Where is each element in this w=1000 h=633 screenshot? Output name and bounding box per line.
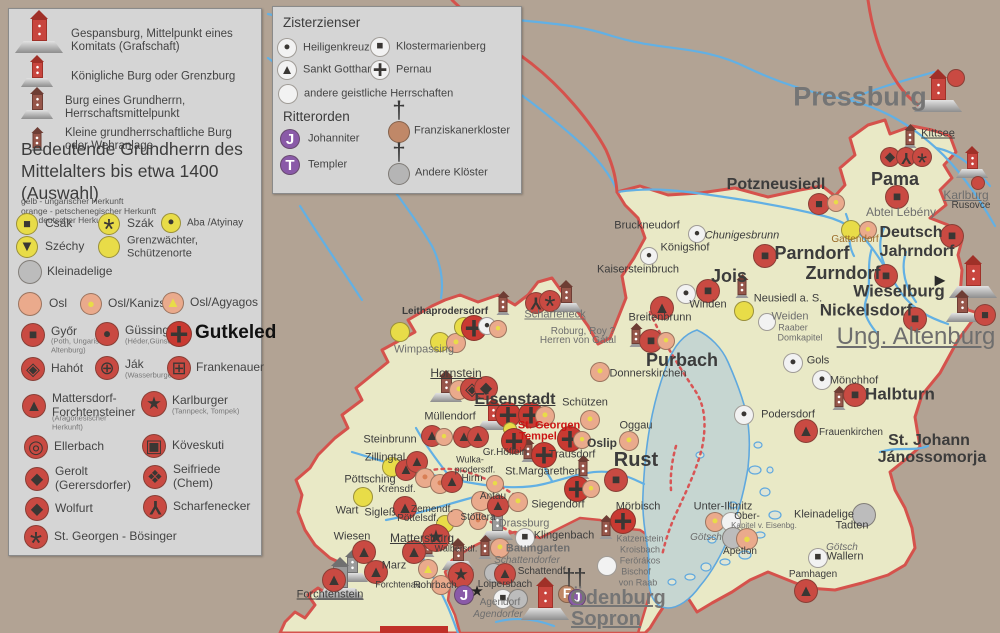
gray-marker xyxy=(18,260,42,284)
red-sqo-marker: ▣ xyxy=(142,434,166,458)
yellow-square-marker: ■ xyxy=(16,213,38,235)
purple-J-marker: J xyxy=(280,129,300,149)
yellow-marker xyxy=(98,236,120,258)
red-diamond-marker: ◆ xyxy=(25,497,49,521)
legend-kirche-heiligenkreuz: Heiligenkreuz xyxy=(303,42,370,55)
red-diamond4-marker: ◈ xyxy=(21,357,45,381)
red-dot-marker: ● xyxy=(95,322,119,346)
legend-kirche-pernau: Pernau xyxy=(396,64,431,77)
legend-family-osl-agyagos: Osl/Agyagos xyxy=(190,296,258,310)
legend-family-cs-k: Csák xyxy=(45,217,72,231)
legend-text-tannpeck-tompek: (Tannpeck, Tompek) xyxy=(172,408,239,417)
legend-family-st-georgen-bösinger: St. Georgen - Bösinger xyxy=(54,530,177,544)
cross-icon: † xyxy=(392,141,405,165)
legend-family-sz-chy: Széchy xyxy=(45,240,84,254)
yellow-dot-marker: ● xyxy=(161,213,181,233)
salmon-ydot-marker: ● xyxy=(80,293,102,315)
legend-label-königliche-burg-oder-grenzburg: Königliche Burg oder Grenzburg xyxy=(71,70,235,83)
white-cross-marker: + xyxy=(370,60,390,80)
red-square-marker: ■ xyxy=(21,323,45,347)
legend-family-osl: Osl xyxy=(49,297,67,311)
red-asterisk-marker: * xyxy=(24,525,48,549)
legend-family-hah-t: Hahót xyxy=(51,362,83,376)
legend-family-sz-k: Szák xyxy=(127,217,154,231)
red-star-marker: ★ xyxy=(141,391,167,417)
legend-title-grundherren: Bedeutende Grundherrn des Mittelalters b… xyxy=(21,139,261,205)
red-rings-marker: ◎ xyxy=(24,435,48,459)
red-trident-marker: Y xyxy=(143,495,167,519)
white-dot-marker: ● xyxy=(277,38,297,58)
legend-text-aragonesischer: (Aragonesischer Herkunft) xyxy=(52,414,107,431)
salmon-marker xyxy=(18,292,42,316)
legend-family-scharfenecker: Scharfenecker xyxy=(173,500,250,514)
red-grid-marker: ⊞ xyxy=(167,356,191,380)
legend-family-aba-atyinay: Aba /Atyinay xyxy=(187,217,243,229)
white-plain-marker xyxy=(278,84,298,104)
purple-T-marker: T xyxy=(280,155,300,175)
legend-family-gutkeled: Gutkeled xyxy=(195,322,276,344)
legend-family-seifriede-chem: Seifriede (Chem) xyxy=(173,463,261,491)
legend-family-gerolt-gerersdorfer: Gerolt (Gerersdorfer) xyxy=(55,465,131,493)
legend-family-wolfurt: Wolfurt xyxy=(55,502,93,516)
border-crossing-bar xyxy=(380,626,448,633)
red-diamond-marker: ◆ xyxy=(25,467,49,491)
legend-family-kleinadelige: Kleinadelige xyxy=(47,265,112,279)
red-ddots-marker: ❖ xyxy=(143,465,167,489)
legend-label-gespansburg-mittelpunkt-eines-komitats-grafschaft: Gespansburg, Mittelpunkt eines Komitats … xyxy=(71,28,233,54)
legend-kirche-klostermarienberg: Klostermarienberg xyxy=(396,41,486,54)
yellow-tridown-marker: ▼ xyxy=(16,236,38,258)
legend-family-ellerbach: Ellerbach xyxy=(54,440,104,454)
white-square-marker: ■ xyxy=(370,37,390,57)
legend-family-frankenauer: Frankenauer xyxy=(196,361,264,375)
legend-kirche-johanniter: Johanniter xyxy=(308,133,359,146)
castle-md-red-icon xyxy=(21,55,53,87)
red-cross-marker: + xyxy=(166,321,192,347)
legend-family-köveskuti: Köveskuti xyxy=(172,439,224,453)
legend-kirche-sankt-gotthard: Sankt Gotthard xyxy=(303,64,377,77)
gray-cloister-marker: † xyxy=(388,163,410,185)
yellow-ast-marker: * xyxy=(98,213,120,235)
castle-md-brown-icon xyxy=(21,87,53,119)
legend-title-ritterorden: Ritterorden xyxy=(283,109,350,125)
legend-kirchliche-herrschaften: ZisterzienserRitterorden●Heiligenkreuz■K… xyxy=(272,6,522,194)
legend-kirche-franziskanerkloster: Franziskanerkloster xyxy=(414,125,510,138)
legend-grundherren: Gespansburg, Mittelpunkt eines Komitats … xyxy=(8,8,262,556)
legend-kirche-templer: Templer xyxy=(308,159,347,172)
legend-title-zisterzienser: Zisterzienser xyxy=(283,15,360,31)
legend-label-burg-eines-grundherrn-herrschaftsmittelpunkt: Burg eines Grundherrn, Herrschaftsmittel… xyxy=(65,95,185,121)
castle-lg-red-icon xyxy=(15,10,63,53)
cross-icon: † xyxy=(392,99,405,123)
red-triangle-marker: ▲ xyxy=(22,394,46,418)
historical-map-burgenland: ◆Y*■■■●●●●■■■■■●▲●●■▲●●+●●Y*●◈◆●■●++●++●… xyxy=(0,0,1000,633)
salmon-ytri-marker: ▲ xyxy=(162,292,184,314)
legend-kirche-andere-geistliche-herrschaften: andere geistliche Herrschaften xyxy=(304,88,453,101)
red-target-marker: ⊕ xyxy=(95,356,119,380)
legend-family-grenzwächter-schützenorte: Grenzwächter, Schützenorte xyxy=(127,234,261,259)
white-tri-marker: ▲ xyxy=(277,60,297,80)
legend-kirche-andere-klöster: Andere Klöster xyxy=(415,167,488,180)
